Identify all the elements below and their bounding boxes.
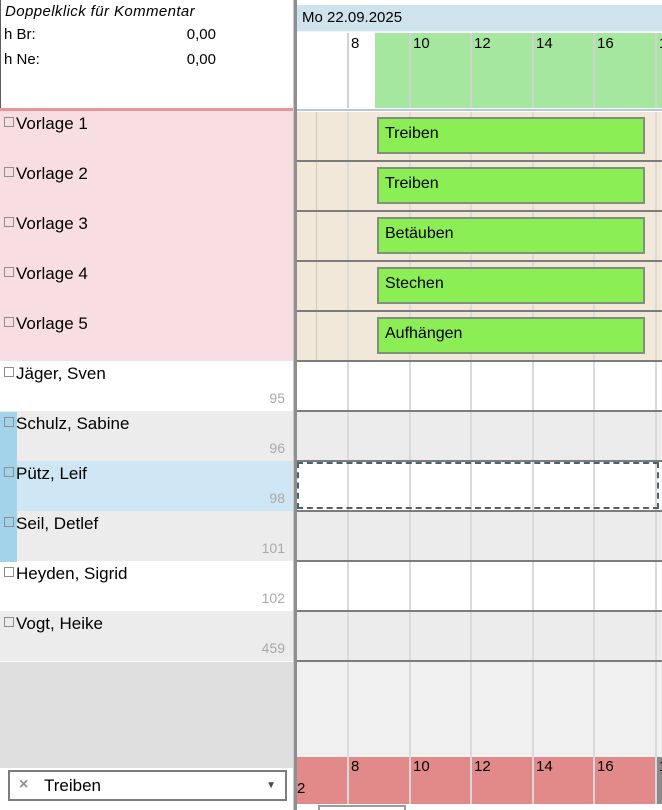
hours-gross-value: 0,00: [187, 26, 216, 43]
template-row[interactable]: Vorlage 5: [0, 311, 293, 361]
template-row[interactable]: Vorlage 2: [0, 161, 293, 211]
person-row[interactable]: Jäger, Sven95: [0, 361, 293, 411]
clear-filter-icon[interactable]: ×: [19, 776, 28, 794]
hour-gridline: [532, 362, 534, 410]
row-label: Pütz, Leif: [16, 464, 87, 484]
activity-bar[interactable]: Treiben: [377, 167, 645, 204]
hour-gridline: [593, 612, 595, 660]
person-number: 98: [269, 490, 285, 506]
hour-label: 12: [474, 758, 491, 775]
hour-gridline: [347, 662, 349, 757]
hour-gridline: [470, 462, 472, 510]
template-row[interactable]: Vorlage 4: [0, 261, 293, 311]
hours-gross-row: h Br: 0,00: [4, 26, 216, 45]
hour-gridline: [593, 512, 595, 560]
activity-bar-label: Betäuben: [385, 225, 454, 243]
person-schedule-row[interactable]: [297, 412, 662, 462]
hour-gridline: [409, 512, 411, 560]
row-label: Seil, Detlef: [16, 514, 98, 534]
selected-row-outline: [297, 462, 659, 509]
row-checkbox[interactable]: [4, 117, 14, 127]
hours-net-value: 0,00: [187, 51, 216, 68]
row-checkbox[interactable]: [4, 567, 14, 577]
hour-gridline: [532, 612, 534, 660]
hour-label: 8: [351, 758, 359, 775]
person-schedule-row[interactable]: [297, 362, 662, 412]
template-row[interactable]: Vorlage 1: [0, 111, 293, 161]
date-header[interactable]: Mo 22.09.2025: [297, 5, 662, 32]
hour-gridline: [347, 262, 349, 310]
person-row[interactable]: Schulz, Sabine96: [0, 411, 293, 461]
hour-gridline: [470, 362, 472, 410]
hour-label: 12: [474, 35, 491, 52]
activity-filter-combobox[interactable]: × Treiben ▼: [8, 770, 287, 801]
person-number: 459: [262, 640, 285, 656]
chevron-down-icon[interactable]: ▼: [266, 780, 276, 791]
hours-gross-label: h Br:: [4, 26, 36, 43]
hour-gridline: [655, 362, 657, 410]
hours-net-label: h Ne:: [4, 51, 40, 68]
activity-bar[interactable]: Betäuben: [377, 217, 645, 254]
schedule-empty-area: [297, 662, 662, 757]
hour-label: 10: [413, 758, 430, 775]
row-checkbox[interactable]: [4, 217, 14, 227]
hour-gridline: [470, 33, 472, 108]
hour-gridline: [532, 562, 534, 610]
row-label: Schulz, Sabine: [16, 414, 129, 434]
hour-gridline-minor: [316, 312, 317, 360]
hour-gridline: [470, 662, 472, 757]
hour-gridline: [655, 162, 657, 210]
hour-gridline: [593, 562, 595, 610]
activity-bar[interactable]: Aufhängen: [377, 317, 645, 354]
hour-gridline: [593, 362, 595, 410]
hour-label: 16: [597, 758, 614, 775]
hour-gridline: [409, 612, 411, 660]
hour-gridline: [593, 462, 595, 510]
hour-gridline: [655, 462, 657, 510]
person-number: 102: [262, 590, 285, 606]
person-row[interactable]: Heyden, Sigrid102: [0, 561, 293, 611]
activity-bar-label: Stechen: [385, 275, 444, 293]
person-row[interactable]: Seil, Detlef101: [0, 511, 293, 561]
hour-gridline: [347, 562, 349, 610]
template-schedule-row[interactable]: Betäuben: [297, 212, 662, 262]
row-checkbox[interactable]: [4, 517, 14, 527]
hour-label: 16: [597, 35, 614, 52]
hour-label: 10: [413, 35, 430, 52]
hour-gridline: [655, 33, 657, 108]
hour-gridline: [470, 512, 472, 560]
bottom-ruler-stray-label: 2: [297, 780, 305, 797]
time-ruler[interactable]: 681012141618: [297, 33, 662, 108]
hour-label: 14: [536, 758, 553, 775]
hour-gridline: [655, 112, 657, 160]
activity-bar[interactable]: Treiben: [377, 117, 645, 154]
template-schedule-row[interactable]: Aufhängen: [297, 312, 662, 362]
row-checkbox[interactable]: [4, 167, 14, 177]
hour-gridline: [655, 412, 657, 460]
resource-list-empty-area: [0, 662, 293, 768]
row-label: Jäger, Sven: [16, 364, 106, 384]
hour-gridline: [347, 112, 349, 160]
date-label: Mo 22.09.2025: [302, 9, 402, 26]
comment-hint-text: Doppelklick für Kommentar: [5, 3, 195, 20]
hour-gridline: [655, 757, 657, 804]
person-number: 101: [262, 540, 285, 556]
hour-gridline: [593, 757, 595, 804]
group-marker-strip: [0, 412, 17, 562]
hour-gridline: [593, 33, 595, 108]
activity-bar-label: Treiben: [385, 175, 439, 193]
template-row[interactable]: Vorlage 3: [0, 211, 293, 261]
row-checkbox[interactable]: [4, 467, 14, 477]
hour-gridline: [347, 412, 349, 460]
scheduler-window: Doppelklick für Kommentar h Br: 0,00 h N…: [0, 0, 662, 810]
schedule-grid: Mo 22.09.2025 681012141618 TreibenTreibe…: [297, 0, 662, 810]
resource-list: Vorlage 1Vorlage 2Vorlage 3Vorlage 4Vorl…: [0, 111, 293, 661]
hour-gridline: [655, 212, 657, 260]
hour-gridline: [655, 512, 657, 560]
row-checkbox[interactable]: [4, 617, 14, 627]
hour-gridline: [532, 512, 534, 560]
hour-gridline: [409, 662, 411, 757]
row-label: Heyden, Sigrid: [16, 564, 128, 584]
row-label: Vorlage 5: [16, 314, 88, 334]
hour-gridline: [470, 562, 472, 610]
hour-gridline: [655, 312, 657, 360]
activity-bar[interactable]: Stechen: [377, 267, 645, 304]
row-label: Vorlage 3: [16, 214, 88, 234]
hour-gridline: [470, 612, 472, 660]
hour-gridline: [409, 412, 411, 460]
hour-gridline: [347, 162, 349, 210]
row-checkbox[interactable]: [4, 417, 14, 427]
comment-info-panel: Doppelklick für Kommentar h Br: 0,00 h N…: [0, 0, 293, 108]
hour-gridline: [532, 33, 534, 108]
activity-bar-label: Treiben: [385, 125, 439, 143]
hour-gridline-minor: [316, 112, 317, 160]
hour-gridline: [347, 512, 349, 560]
person-row[interactable]: Pütz, Leif98: [0, 461, 293, 511]
template-schedule-row[interactable]: Treiben: [297, 112, 662, 162]
hour-gridline: [347, 312, 349, 360]
hour-gridline: [470, 757, 472, 804]
row-checkbox[interactable]: [4, 367, 14, 377]
bottom-scroll-strip: [297, 804, 662, 810]
schedule-rows: TreibenTreibenBetäubenStechenAufhängen: [297, 112, 662, 662]
scrollbar-thumb[interactable]: [318, 805, 406, 810]
hour-gridline: [532, 757, 534, 804]
hour-gridline: [532, 412, 534, 460]
hour-gridline: [347, 362, 349, 410]
hour-gridline: [409, 362, 411, 410]
hour-gridline-minor: [316, 212, 317, 260]
person-schedule-row[interactable]: [297, 512, 662, 562]
hour-label: 8: [351, 35, 359, 52]
hour-gridline: [347, 462, 349, 510]
hour-gridline: [409, 33, 411, 108]
hour-gridline: [655, 562, 657, 610]
hour-gridline-minor: [316, 162, 317, 210]
hour-gridline: [347, 212, 349, 260]
hour-gridline: [655, 262, 657, 310]
filter-footer: × Treiben ▼: [0, 768, 293, 810]
template-schedule-row[interactable]: Stechen: [297, 262, 662, 312]
hours-net-row: h Ne: 0,00: [4, 51, 216, 70]
person-schedule-row[interactable]: [297, 462, 662, 512]
hour-gridline: [655, 612, 657, 660]
bottom-time-ruler[interactable]: 2 81012141618: [297, 757, 662, 804]
hour-gridline: [470, 412, 472, 460]
hour-gridline-minor: [316, 262, 317, 310]
hour-label: 14: [536, 35, 553, 52]
person-schedule-row[interactable]: [297, 612, 662, 662]
hour-gridline: [409, 757, 411, 804]
row-checkbox[interactable]: [4, 267, 14, 277]
person-schedule-row[interactable]: [297, 562, 662, 612]
row-label: Vogt, Heike: [16, 614, 103, 634]
person-row[interactable]: Vogt, Heike459: [0, 611, 293, 661]
hour-gridline: [409, 462, 411, 510]
hour-gridline: [593, 412, 595, 460]
activity-bar-label: Aufhängen: [385, 325, 462, 343]
hour-gridline: [532, 662, 534, 757]
hour-gridline: [347, 612, 349, 660]
row-label: Vorlage 2: [16, 164, 88, 184]
hour-gridline: [347, 757, 349, 804]
activity-filter-value: Treiben: [44, 776, 101, 796]
person-number: 95: [269, 390, 285, 406]
hour-gridline: [655, 662, 657, 757]
template-schedule-row[interactable]: Treiben: [297, 162, 662, 212]
hour-gridline: [593, 662, 595, 757]
person-number: 96: [269, 440, 285, 456]
hour-gridline: [532, 462, 534, 510]
hour-gridline: [347, 33, 349, 108]
row-checkbox[interactable]: [4, 317, 14, 327]
hour-gridline: [409, 562, 411, 610]
row-label: Vorlage 4: [16, 264, 88, 284]
row-label: Vorlage 1: [16, 114, 88, 134]
